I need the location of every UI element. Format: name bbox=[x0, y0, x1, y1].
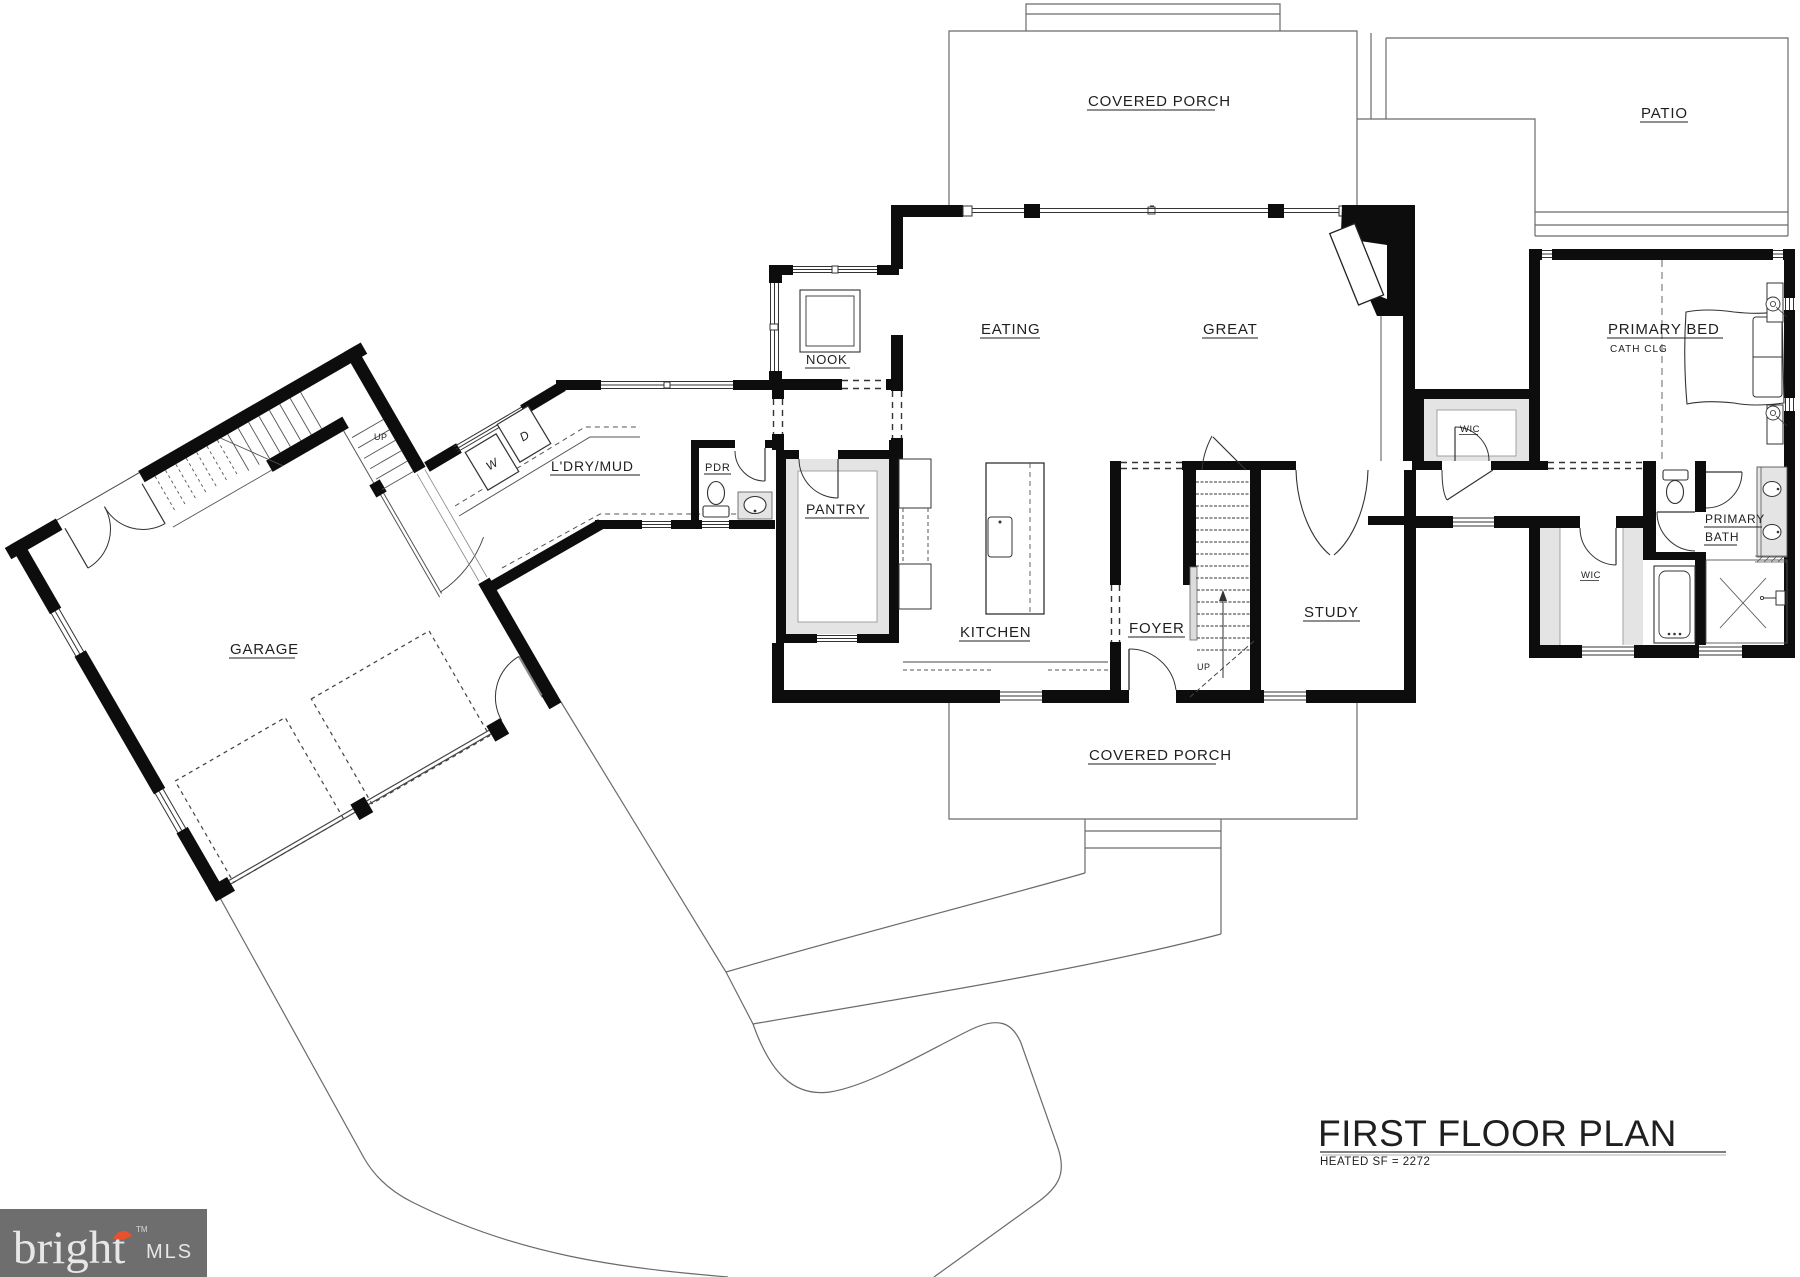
svg-text:HEATED SF = 2272: HEATED SF = 2272 bbox=[1320, 1156, 1430, 1168]
svg-text:EATING: EATING bbox=[981, 321, 1041, 338]
svg-text:UP: UP bbox=[1197, 662, 1211, 672]
svg-text:L'DRY/MUD: L'DRY/MUD bbox=[551, 458, 634, 474]
svg-text:BATH: BATH bbox=[1705, 530, 1739, 544]
svg-text:STUDY: STUDY bbox=[1304, 604, 1359, 621]
svg-text:PRIMARY BED: PRIMARY BED bbox=[1608, 321, 1720, 338]
svg-text:COVERED PORCH: COVERED PORCH bbox=[1089, 747, 1232, 764]
svg-text:CATH CLG: CATH CLG bbox=[1610, 344, 1668, 355]
svg-text:TM: TM bbox=[136, 1225, 148, 1234]
svg-text:NOOK: NOOK bbox=[806, 352, 847, 367]
svg-text:PATIO: PATIO bbox=[1641, 105, 1688, 122]
svg-text:MLS: MLS bbox=[146, 1241, 193, 1263]
svg-text:KITCHEN: KITCHEN bbox=[960, 624, 1031, 641]
svg-text:UP: UP bbox=[374, 432, 388, 442]
svg-text:COVERED PORCH: COVERED PORCH bbox=[1088, 93, 1231, 110]
svg-text:WIC: WIC bbox=[1460, 424, 1480, 435]
svg-text:GREAT: GREAT bbox=[1203, 321, 1258, 338]
svg-text:GARAGE: GARAGE bbox=[230, 641, 299, 658]
svg-text:PRIMARY: PRIMARY bbox=[1705, 512, 1765, 526]
svg-text:WIC: WIC bbox=[1581, 570, 1601, 581]
svg-text:FIRST FLOOR PLAN: FIRST FLOOR PLAN bbox=[1318, 1113, 1677, 1154]
svg-text:bright: bright bbox=[13, 1222, 125, 1274]
svg-text:FOYER: FOYER bbox=[1129, 620, 1185, 637]
svg-text:PANTRY: PANTRY bbox=[806, 501, 866, 517]
svg-text:PDR: PDR bbox=[705, 462, 731, 474]
